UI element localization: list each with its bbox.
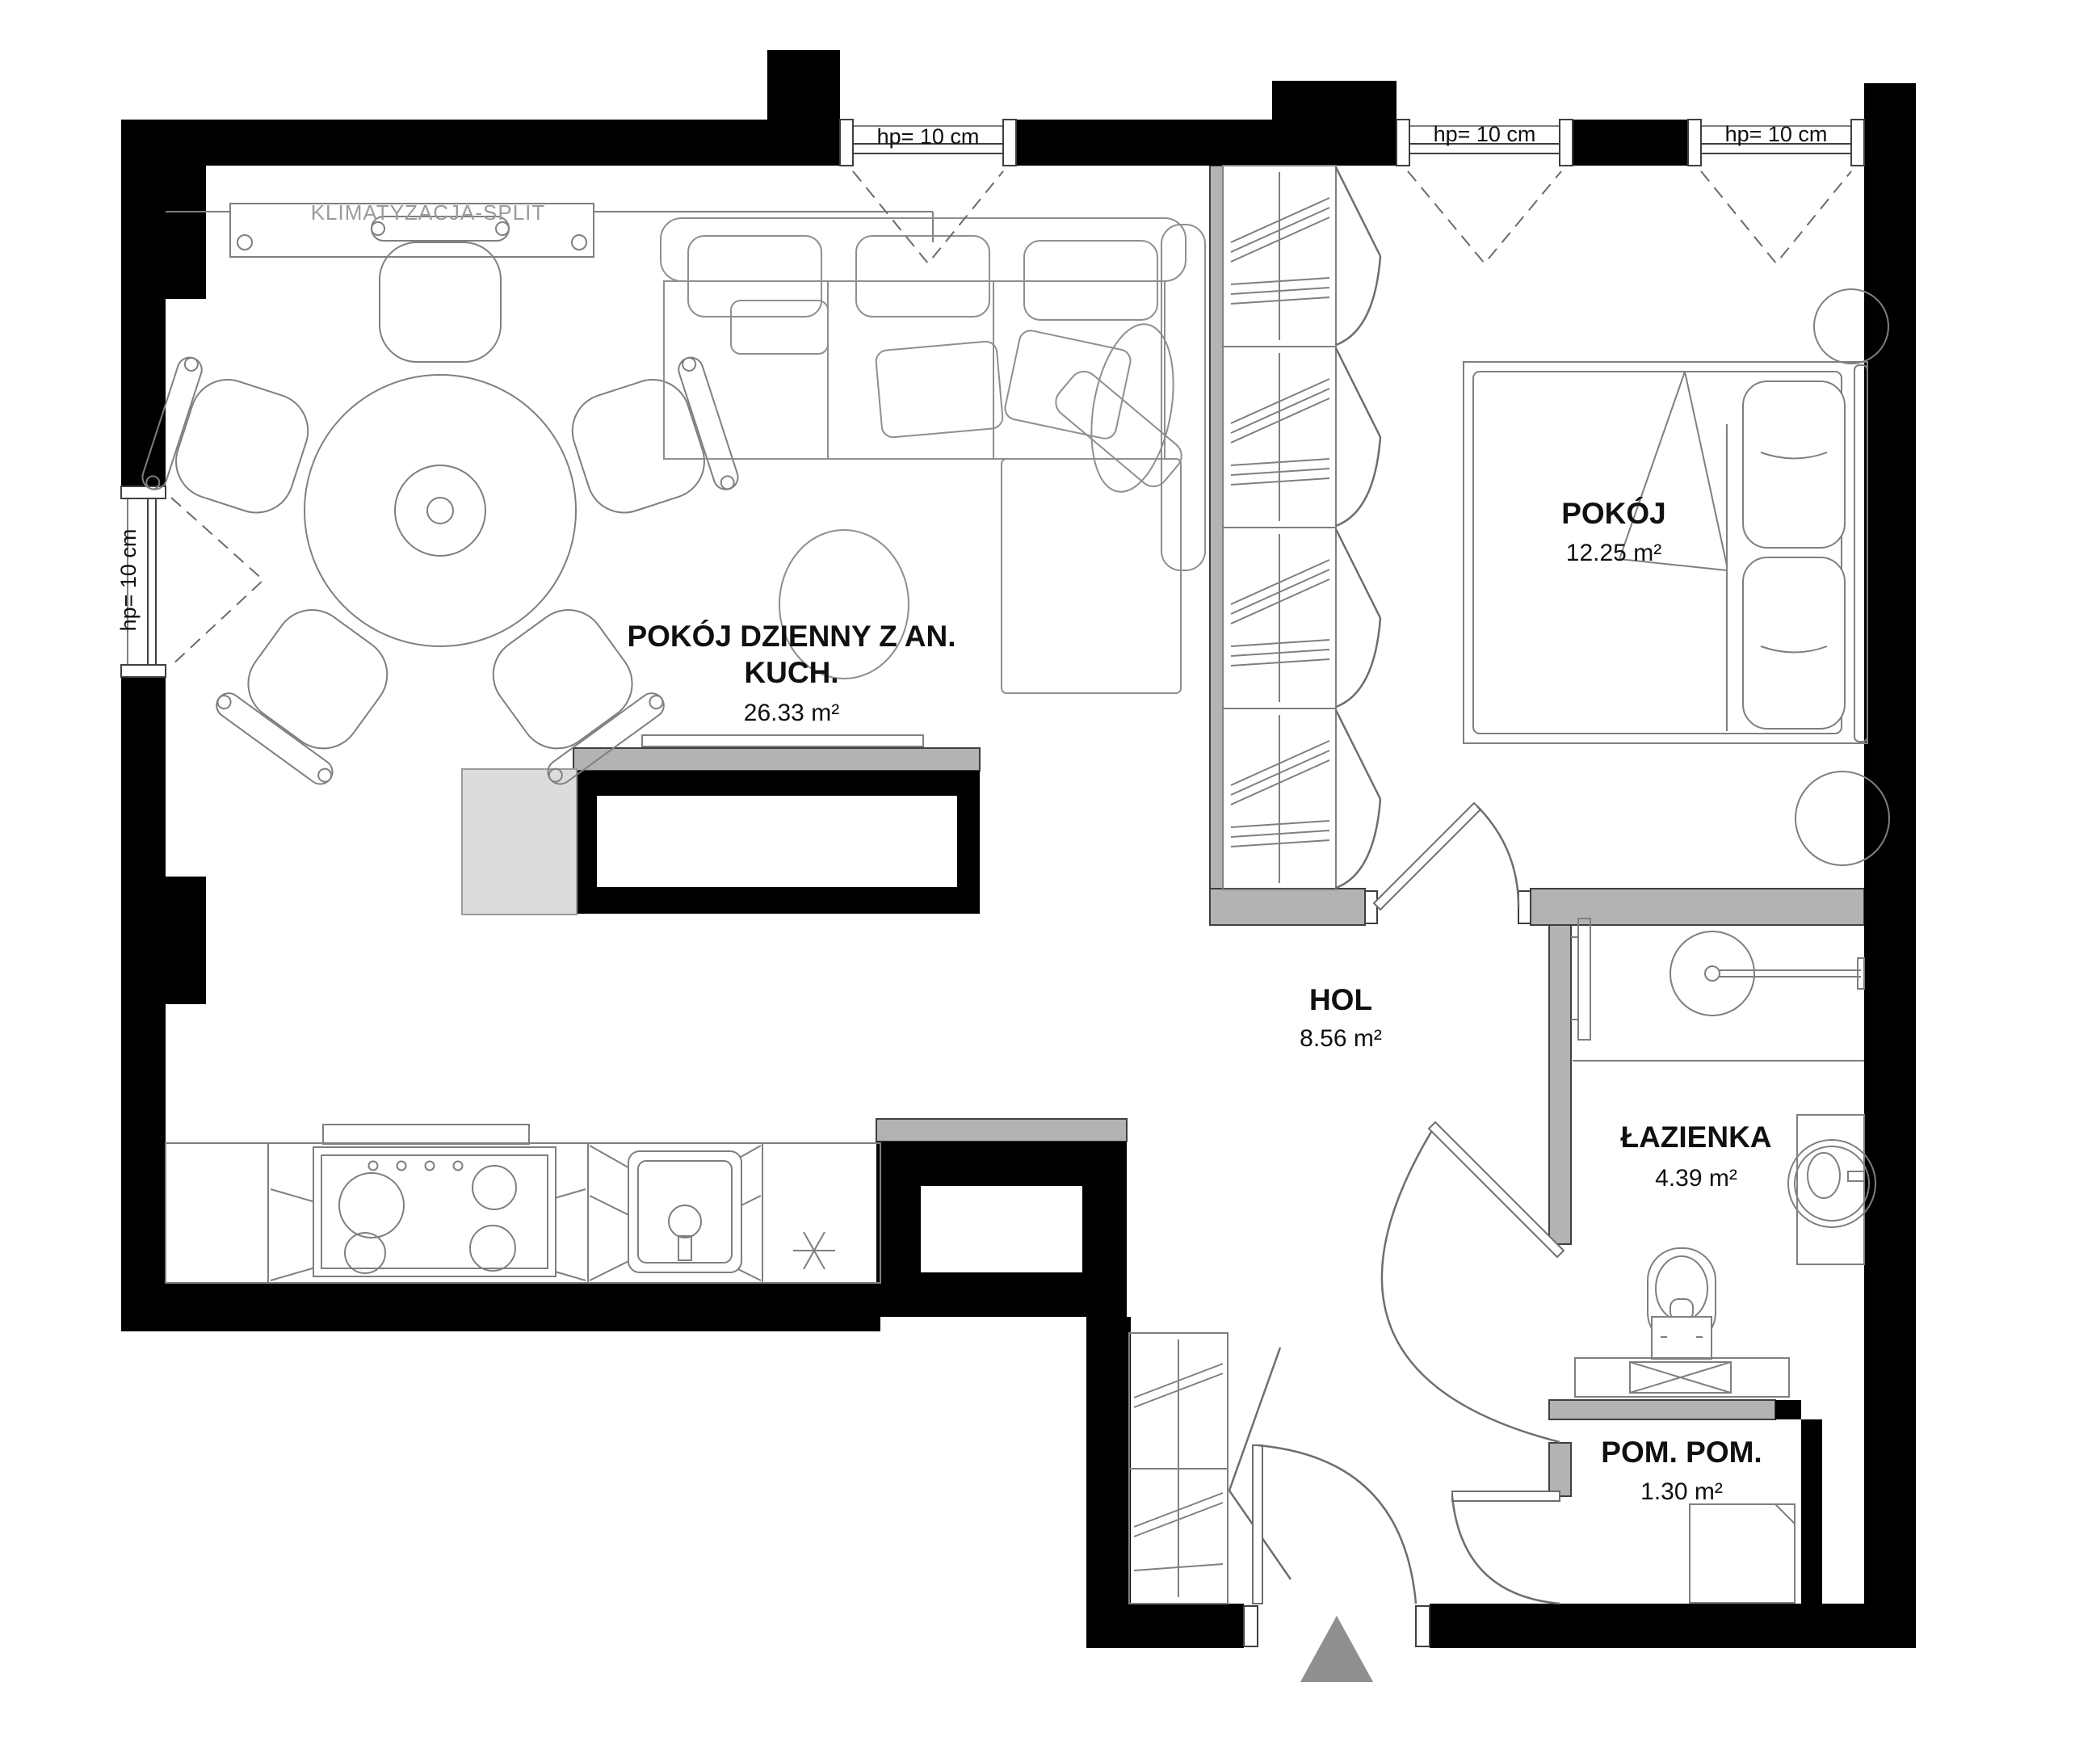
bedroom-partition-wall-left	[1210, 889, 1365, 925]
bathroom-door	[1382, 1122, 1564, 1442]
back-cushion	[856, 236, 989, 317]
bedroom-partition-wall-right	[1531, 889, 1864, 925]
kitchen-tall-cabinet	[876, 1119, 1127, 1317]
room-area-living: 26.33 m²	[744, 700, 839, 726]
window-label-top-3: hp= 10 cm	[1725, 122, 1828, 146]
washbasin	[1788, 1115, 1875, 1264]
window-label-top-1: hp= 10 cm	[877, 124, 980, 149]
utility-door	[1452, 1491, 1560, 1604]
faucet	[1848, 1171, 1864, 1181]
pillow	[731, 301, 828, 354]
floor-plan-page: KLIMATYZACJA-SPLIT hp= 10 cm hp= 10 cm h…	[0, 0, 2100, 1745]
toilet	[1648, 1248, 1716, 1359]
bathroom-partition-wall-lower	[1549, 1443, 1571, 1496]
back-cushion	[688, 236, 821, 317]
ac-label: KLIMATYZACJA-SPLIT	[311, 200, 546, 225]
pillow	[1743, 381, 1845, 548]
oven-handle	[323, 1125, 529, 1144]
stove	[313, 1147, 556, 1276]
utility-partition-wall	[1549, 1400, 1775, 1419]
kitchen-island	[573, 735, 980, 914]
room-label-bathroom: ŁAZIENKA	[1620, 1121, 1771, 1154]
light-symbol	[793, 1232, 835, 1269]
room-label-living-line2: KUCH.	[744, 656, 838, 689]
ac-unit	[166, 204, 933, 257]
room-label-bedroom: POKÓJ	[1561, 496, 1666, 530]
wardrobe-entry	[1129, 1333, 1291, 1604]
room-area-utility: 1.30 m²	[1640, 1478, 1723, 1505]
shower	[1573, 931, 1864, 1061]
room-label-utility: POM. POM.	[1601, 1436, 1762, 1469]
chair	[372, 217, 509, 362]
floor-plan: KLIMATYZACJA-SPLIT hp= 10 cm hp= 10 cm h…	[0, 0, 2100, 1745]
chair	[561, 355, 741, 530]
pillow	[1743, 557, 1845, 729]
kitchen-counter	[166, 1125, 880, 1283]
chair	[140, 355, 321, 530]
wardrobe-partition-wall	[1210, 166, 1223, 889]
bed	[1464, 362, 1867, 743]
room-label-living-line1: POKÓJ DZIENNY Z AN.	[627, 619, 955, 653]
dining-set	[140, 217, 741, 788]
chair	[212, 591, 408, 789]
pillow	[876, 341, 1004, 439]
window-label-left: hp= 10 cm	[116, 529, 141, 632]
fridge	[462, 769, 577, 915]
utility-cabinet	[1690, 1504, 1795, 1603]
room-area-bedroom: 12.25 m²	[1566, 540, 1661, 566]
room-area-bathroom: 4.39 m²	[1655, 1165, 1737, 1192]
dining-table	[304, 375, 576, 646]
bathroom-partition-wall-upper	[1549, 925, 1571, 1244]
room-area-hall: 8.56 m²	[1300, 1025, 1382, 1052]
sink	[628, 1151, 741, 1272]
pillow	[1003, 329, 1132, 441]
room-label-hall: HOL	[1309, 983, 1372, 1016]
entrance-arrow	[1300, 1616, 1373, 1682]
bathroom-fixtures	[1571, 919, 1875, 1397]
towel-radiator	[1571, 919, 1590, 1040]
doors	[1244, 803, 1564, 1646]
wardrobe-tall	[1223, 166, 1380, 889]
window-label-top-2: hp= 10 cm	[1434, 122, 1536, 146]
bedroom-door	[1365, 803, 1531, 923]
toilet-cabinet	[1575, 1358, 1789, 1397]
interior-partitions	[1210, 166, 1864, 1496]
